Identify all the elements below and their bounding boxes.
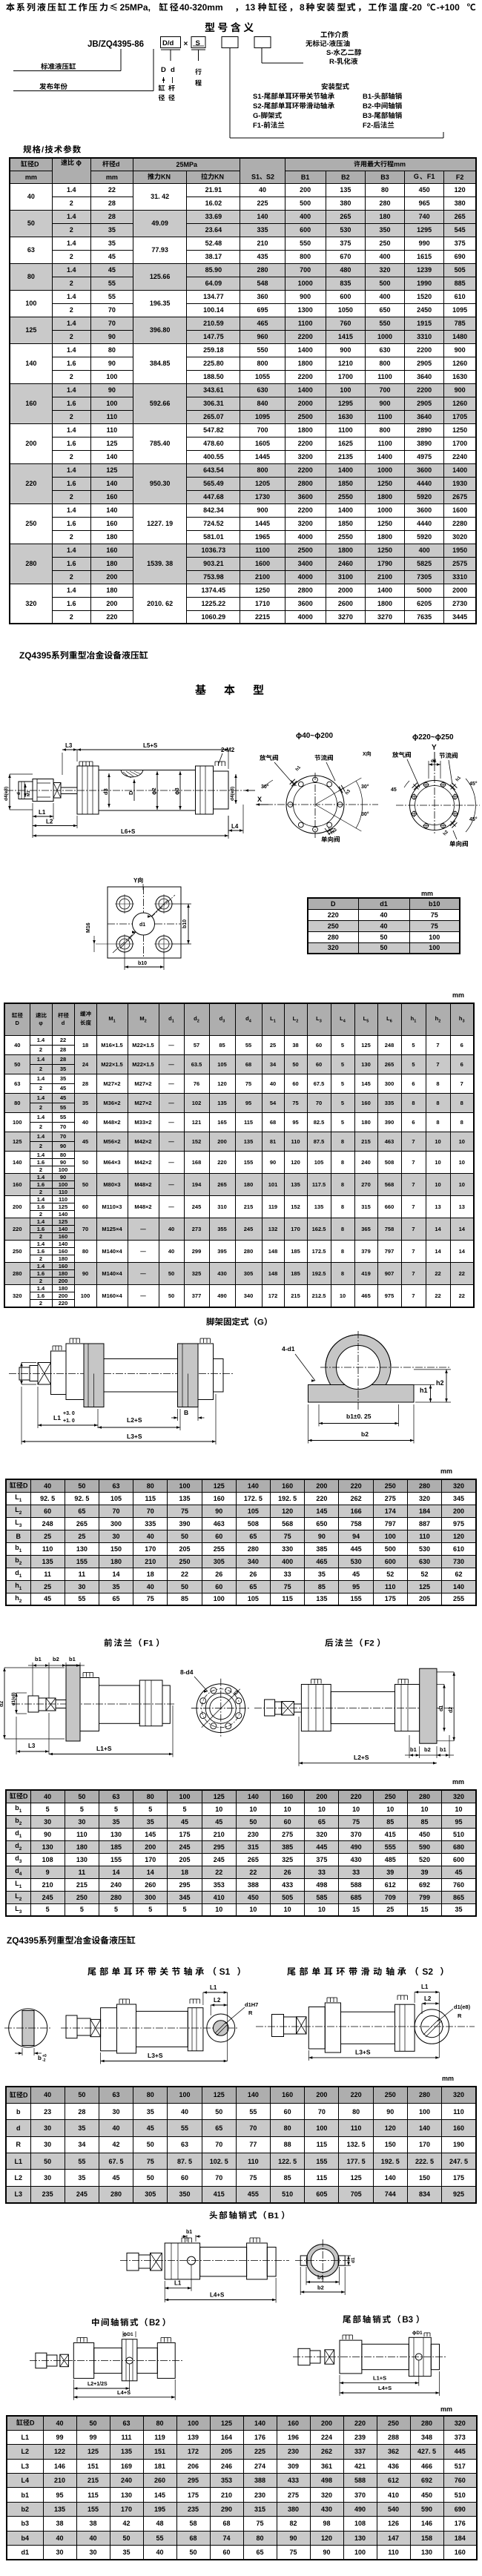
svg-text:S2: S2 <box>265 174 274 181</box>
svg-text:L1: L1 <box>53 1414 61 1421</box>
svg-text:B3: B3 <box>402 2316 413 2325</box>
svg-text:R: R <box>248 2009 253 2016</box>
svg-text:B2-: B2- <box>363 102 374 110</box>
svg-text:G-: G- <box>253 112 261 120</box>
svg-text:L3: L3 <box>28 1743 36 1749</box>
svg-text:b1: b1 <box>35 1656 42 1662</box>
svg-text:d1(e8): d1(e8) <box>454 2004 471 2010</box>
svg-text:L1: L1 <box>421 1984 429 1990</box>
svg-text:b2: b2 <box>53 1656 59 1662</box>
svg-text:d1H7: d1H7 <box>245 2001 258 2008</box>
svg-text:D: D <box>23 1792 28 1800</box>
svg-text:S1: S1 <box>251 174 260 181</box>
svg-text:h3: h3 <box>345 789 352 796</box>
svg-text:B1-: B1- <box>363 93 374 101</box>
svg-text:d1: d1 <box>431 759 437 764</box>
svg-text:45: 45 <box>391 787 397 793</box>
svg-text:D: D <box>23 2091 28 2098</box>
svg-text:L2+1/2S: L2+1/2S <box>88 2382 108 2387</box>
svg-text:D1: D1 <box>416 2331 423 2336</box>
svg-text:F1-: F1- <box>253 122 263 130</box>
svg-text:30°: 30° <box>361 811 369 817</box>
svg-text:d4(e8): d4(e8) <box>230 787 235 801</box>
svg-text:h2: h2 <box>443 830 450 837</box>
svg-text:d: d <box>116 160 120 168</box>
svg-text:+3. 0: +3. 0 <box>63 1411 75 1416</box>
svg-text:d1: d1 <box>139 922 145 928</box>
svg-text:40~: 40~ <box>302 732 314 740</box>
svg-text:d2: d2 <box>449 1707 454 1713</box>
svg-text:b2: b2 <box>424 1746 431 1753</box>
svg-text:L2: L2 <box>214 1997 221 2004</box>
svg-text:L6+S: L6+S <box>121 828 136 835</box>
svg-text:d: d <box>17 792 22 795</box>
svg-text:L1+S: L1+S <box>96 1745 112 1752</box>
svg-text:M1: M1 <box>27 790 31 796</box>
svg-text:L1: L1 <box>210 1984 217 1991</box>
svg-text:KN: KN <box>214 173 224 180</box>
svg-text:B3-: B3- <box>363 112 374 120</box>
svg-text:ZQ4395: ZQ4395 <box>19 650 51 661</box>
svg-text:h2: h2 <box>331 828 339 835</box>
svg-text:L2: L2 <box>46 819 53 825</box>
svg-text:S2-: S2- <box>253 102 264 110</box>
svg-text:-2: -2 <box>42 2058 46 2063</box>
svg-text:L2: L2 <box>424 1995 432 2002</box>
svg-text:G: G <box>257 1318 264 1327</box>
svg-text:b1: b1 <box>410 1746 417 1753</box>
svg-text:M16: M16 <box>86 922 91 933</box>
svg-text:mm: mm <box>421 890 433 897</box>
svg-text:S1-: S1- <box>253 93 264 101</box>
svg-text:X: X <box>257 796 262 803</box>
svg-text:D: D <box>34 160 39 168</box>
svg-text:30°: 30° <box>361 784 369 790</box>
svg-text:D: D <box>128 790 134 795</box>
svg-text:4-d1: 4-d1 <box>282 1345 295 1353</box>
svg-text:L3: L3 <box>65 742 73 749</box>
svg-text:mm: mm <box>440 1467 452 1475</box>
svg-text:D: D <box>30 2420 35 2427</box>
svg-text:×: × <box>184 40 188 48</box>
svg-text:L4+S: L4+S <box>378 2385 392 2391</box>
svg-text:b2: b2 <box>361 1430 369 1438</box>
svg-text:B2: B2 <box>149 2319 160 2328</box>
svg-text:S1: S1 <box>219 1966 231 1977</box>
svg-text:Y: Y <box>432 744 437 752</box>
svg-text:ZQ4395: ZQ4395 <box>7 1935 39 1946</box>
svg-text:220~: 220~ <box>418 733 435 742</box>
svg-text:/: / <box>42 146 44 155</box>
svg-text:250: 250 <box>441 733 454 742</box>
svg-text:L3+S: L3+S <box>148 2052 163 2059</box>
svg-text:d3: d3 <box>233 1690 240 1697</box>
svg-text:B1: B1 <box>268 2212 279 2221</box>
svg-text:45°: 45° <box>469 781 478 787</box>
svg-text:L1: L1 <box>39 809 46 816</box>
svg-text:B: B <box>184 1409 188 1416</box>
svg-text:L1: L1 <box>174 2280 182 2287</box>
svg-text:F2: F2 <box>364 1639 374 1648</box>
svg-text:b10: b10 <box>182 919 188 928</box>
svg-text:45°: 45° <box>469 816 478 822</box>
svg-text:S2: S2 <box>422 1966 433 1977</box>
svg-text:8-d4: 8-d4 <box>180 1668 194 1676</box>
svg-text:h2: h2 <box>436 1379 444 1387</box>
svg-text:L4+S: L4+S <box>210 2292 225 2299</box>
svg-text:D: D <box>161 66 166 74</box>
svg-text:d1(e8): d1(e8) <box>12 1692 16 1705</box>
svg-text:L3+S: L3+S <box>127 1433 142 1440</box>
svg-text:+1. 0: +1. 0 <box>63 1419 75 1424</box>
svg-text:d4(e8): d4(e8) <box>4 787 9 801</box>
svg-text:JB/ZQ4395-86: JB/ZQ4395-86 <box>88 40 144 49</box>
svg-text:200: 200 <box>320 732 333 740</box>
svg-text:b: b <box>38 2055 42 2061</box>
svg-text:30°: 30° <box>261 784 269 790</box>
svg-text:-: - <box>327 40 329 48</box>
svg-text:b10: b10 <box>138 961 147 966</box>
svg-text:Y: Y <box>133 877 138 884</box>
svg-text:b1: b1 <box>317 2274 324 2281</box>
svg-text:2-M2: 2-M2 <box>221 747 235 753</box>
svg-text:2: 2 <box>152 787 157 790</box>
svg-text:b1: b1 <box>186 2230 192 2235</box>
svg-text:b1: b1 <box>69 1656 76 1662</box>
svg-text:h1: h1 <box>295 765 303 773</box>
svg-text:b1±0. 25: b1±0. 25 <box>346 1413 372 1420</box>
svg-text:X: X <box>363 752 366 757</box>
svg-text:d3: d3 <box>102 788 109 795</box>
svg-text:L5+S: L5+S <box>143 742 158 749</box>
svg-text:d2: d2 <box>0 1701 4 1707</box>
svg-text:D/d: D/d <box>162 39 174 47</box>
svg-text:D: D <box>23 1482 28 1489</box>
svg-text:L1+S: L1+S <box>373 2375 386 2382</box>
svg-text:d: d <box>171 66 175 74</box>
svg-text:L2+S: L2+S <box>127 1416 142 1424</box>
svg-text:F1: F1 <box>143 1639 153 1648</box>
svg-text:L3+S: L3+S <box>355 2049 371 2056</box>
svg-text:F2-: F2- <box>363 122 373 130</box>
svg-text:h1: h1 <box>455 776 463 783</box>
svg-text:KN: KN <box>161 173 171 180</box>
svg-text:h1: h1 <box>420 1387 428 1394</box>
svg-text:R-: R- <box>329 58 337 66</box>
svg-text:L2+S: L2+S <box>354 1754 369 1761</box>
svg-text:R: R <box>458 2012 462 2019</box>
svg-text:D1: D1 <box>127 2332 133 2337</box>
svg-text:d1: d1 <box>351 2257 356 2263</box>
svg-text:mm: mm <box>394 160 406 168</box>
svg-text:L4+S: L4+S <box>117 2389 131 2396</box>
svg-text:L4: L4 <box>231 823 239 830</box>
svg-text:3: 3 <box>175 787 180 790</box>
svg-text:mm: mm <box>440 2405 452 2413</box>
svg-text:b1: b1 <box>440 1746 446 1753</box>
svg-text:S-: S- <box>326 49 334 57</box>
svg-text:d1: d1 <box>439 1705 444 1711</box>
svg-text:b2: b2 <box>317 2285 324 2291</box>
